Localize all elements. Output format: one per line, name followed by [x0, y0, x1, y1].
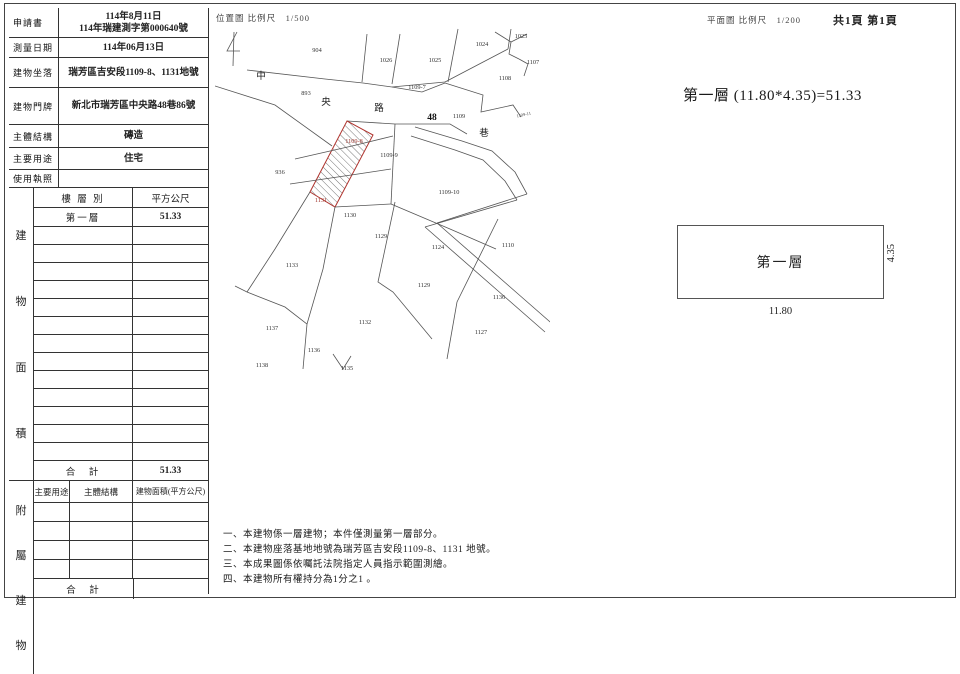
parcel-label: 1130 — [344, 212, 356, 219]
note-line: 四、本建物所有權持分為1分之1 。 — [223, 573, 496, 588]
empty-row — [34, 560, 208, 579]
table-row: 建物門牌 新北市瑞芳區中央路48巷86號 — [9, 88, 208, 125]
side-char: 物 — [16, 293, 27, 309]
table-row: 申請書 114年8月11日 114年瑞建測字第000640號 — [9, 8, 208, 38]
north-arrow-icon — [227, 32, 240, 66]
parcel-label: 1023 — [515, 33, 528, 40]
empty-row — [34, 317, 208, 335]
empty-row — [34, 541, 208, 560]
parcel-label: 央 — [321, 96, 331, 108]
note-line: 三、本成果圖係依囑託法院指定人員指示範圍測繪。 — [223, 558, 496, 573]
parcel-label: 1129 — [375, 233, 387, 240]
annex-structure-header: 主體結構 — [70, 481, 133, 502]
empty-row — [34, 443, 208, 461]
table-row: 測量日期 114年06月13日 — [9, 38, 208, 58]
empty-row — [34, 425, 208, 443]
side-char: 面 — [16, 359, 27, 375]
total-label: 合 計 — [34, 461, 133, 480]
parcel-label: 48 — [427, 113, 437, 123]
empty-row — [34, 281, 208, 299]
empty-row — [34, 335, 208, 353]
field-label: 測量日期 — [9, 38, 59, 57]
parcel-label: 1136 — [493, 294, 505, 301]
parcel-label: 1108 — [499, 75, 511, 82]
subject-parcel-hatched — [310, 121, 373, 207]
empty-row — [34, 227, 208, 245]
field-value: 114年8月11日 114年瑞建測字第000640號 — [59, 8, 208, 37]
floor-plan-rect: 第一層 — [677, 225, 884, 299]
application-date: 114年8月11日 — [106, 11, 162, 23]
area-grid: 樓 層 別 平方公尺 第一層 51.33 — [34, 188, 208, 480]
annex-area-header: 建物面積(平方公尺) — [133, 481, 208, 502]
floor-plan-height-dimension: 4.35 — [886, 244, 897, 262]
floor-plan-room-label: 第一層 — [757, 252, 805, 272]
annex-total-row: 合 計 — [34, 579, 208, 599]
table-row: 建物坐落 瑞芳區吉安段1109-8、1131地號 — [9, 58, 208, 88]
parcel-label: 1109 — [453, 113, 465, 120]
floor-name: 第一層 — [34, 208, 133, 226]
parcel-label: 904 — [312, 47, 322, 54]
building-area-side-label: 建 物 面 積 — [9, 188, 34, 480]
parcel-label: 1109-8 — [345, 138, 363, 145]
table-row: 主要用途 住宅 — [9, 148, 208, 170]
area-column-header: 平方公尺 — [133, 188, 208, 207]
building-address: 新北市瑞芳區中央路48巷86號 — [59, 88, 208, 124]
structure-type: 磚造 — [59, 125, 208, 147]
annex-total-value — [134, 579, 208, 599]
parcel-label: 1127 — [475, 329, 487, 336]
parcel-label: 1107 — [527, 59, 539, 66]
parcel-label: 936 — [275, 169, 284, 176]
side-char: 建 — [16, 227, 27, 243]
location-map: 9041026102510241023110711081109-7893中央路4… — [215, 24, 550, 389]
annex-total-label: 合 計 — [34, 579, 134, 599]
use-license — [59, 170, 208, 187]
side-char: 附 — [16, 502, 27, 518]
parcel-label: 1129 — [418, 282, 430, 289]
side-char: 積 — [16, 425, 27, 441]
empty-row — [34, 522, 208, 541]
side-char: 屬 — [16, 547, 27, 563]
annex-side-label: 附 屬 建 物 — [9, 481, 34, 674]
survey-sheet: 申請書 114年8月11日 114年瑞建測字第000640號 測量日期 114年… — [4, 3, 956, 598]
parcel-label: 1136 — [308, 347, 320, 354]
parcel-label: 1124 — [432, 244, 445, 251]
parcel-label: 1110 — [502, 242, 514, 249]
empty-row — [34, 263, 208, 281]
empty-row — [34, 299, 208, 317]
notes-list: 一、本建物係一層建物；本件僅測量第一層部分。 二、本建物座落基地地號為瑞芳區吉安… — [223, 528, 496, 588]
field-label: 使用執照 — [9, 170, 59, 187]
annex-building-section: 附 屬 建 物 主要用途 主體結構 建物面積(平方公尺) 合 計 — [9, 480, 208, 674]
floor-plan-scale-label: 平面圖 比例尺 1/200 — [707, 14, 801, 26]
field-label: 建物坐落 — [9, 58, 59, 87]
building-location: 瑞芳區吉安段1109-8、1131地號 — [59, 58, 208, 87]
side-char: 物 — [16, 637, 27, 653]
empty-row — [34, 389, 208, 407]
annex-use-header: 主要用途 — [34, 481, 70, 502]
parcel-label: 1025 — [429, 57, 442, 64]
empty-row — [34, 353, 208, 371]
annex-grid: 主要用途 主體結構 建物面積(平方公尺) 合 計 — [34, 481, 208, 674]
survey-date: 114年06月13日 — [59, 38, 208, 57]
parcel-label: 巷 — [479, 128, 489, 139]
side-char: 建 — [16, 592, 27, 608]
parcel-label: 1109-11 — [516, 111, 531, 119]
empty-row — [34, 503, 208, 522]
annex-header-row: 主要用途 主體結構 建物面積(平方公尺) — [34, 481, 208, 503]
area-formula: 第一層 (11.80*4.35)=51.33 — [683, 84, 862, 105]
area-total-row: 合 計 51.33 — [34, 461, 208, 480]
parcel-label: 1133 — [286, 262, 298, 269]
main-use: 住宅 — [59, 148, 208, 169]
field-label: 主要用途 — [9, 148, 59, 169]
field-label: 建物門牌 — [9, 88, 59, 124]
parcel-label: 路 — [374, 102, 384, 114]
area-data-row: 第一層 51.33 — [34, 208, 208, 227]
empty-row — [34, 245, 208, 263]
page-info: 共1頁 第1頁 — [833, 12, 898, 28]
note-line: 二、本建物座落基地地號為瑞芳區吉安段1109-8、1131 地號。 — [223, 543, 496, 558]
parcel-label: 1109-7 — [408, 84, 426, 91]
parcel-label: 1109-10 — [439, 189, 460, 196]
parcel-label: 1135 — [341, 365, 353, 372]
floor-column-header: 樓 層 別 — [34, 188, 133, 207]
parcel-label: 893 — [301, 90, 310, 97]
total-area-value: 51.33 — [133, 461, 208, 480]
floor-plan-width-dimension: 11.80 — [677, 306, 884, 317]
parcel-label: 1132 — [359, 319, 371, 326]
table-row: 使用執照 — [9, 170, 208, 188]
parcel-label: 1109-9 — [380, 152, 398, 159]
parcel-label: 1024 — [476, 41, 489, 48]
parcel-label: 1138 — [256, 362, 268, 369]
area-header-row: 樓 層 別 平方公尺 — [34, 188, 208, 208]
parcel-label: 中 — [256, 70, 266, 82]
building-area-section: 建 物 面 積 樓 層 別 平方公尺 第一層 51.33 — [9, 188, 208, 480]
parcel-label: 1137 — [266, 325, 278, 332]
info-table: 申請書 114年8月11日 114年瑞建測字第000640號 測量日期 114年… — [9, 8, 209, 594]
table-row: 主體結構 磚造 — [9, 125, 208, 148]
parcel-label: 1026 — [380, 57, 393, 64]
empty-row — [34, 407, 208, 425]
application-number: 114年瑞建測字第000640號 — [79, 23, 188, 35]
location-map-scale-label: 位置圖 比例尺 1/500 — [216, 12, 310, 24]
parcel-label: 1131 — [315, 197, 327, 204]
note-line: 一、本建物係一層建物；本件僅測量第一層部分。 — [223, 528, 496, 543]
field-label: 申請書 — [9, 8, 59, 37]
empty-row — [34, 371, 208, 389]
field-label: 主體結構 — [9, 125, 59, 147]
floor-area-value: 51.33 — [133, 208, 208, 226]
